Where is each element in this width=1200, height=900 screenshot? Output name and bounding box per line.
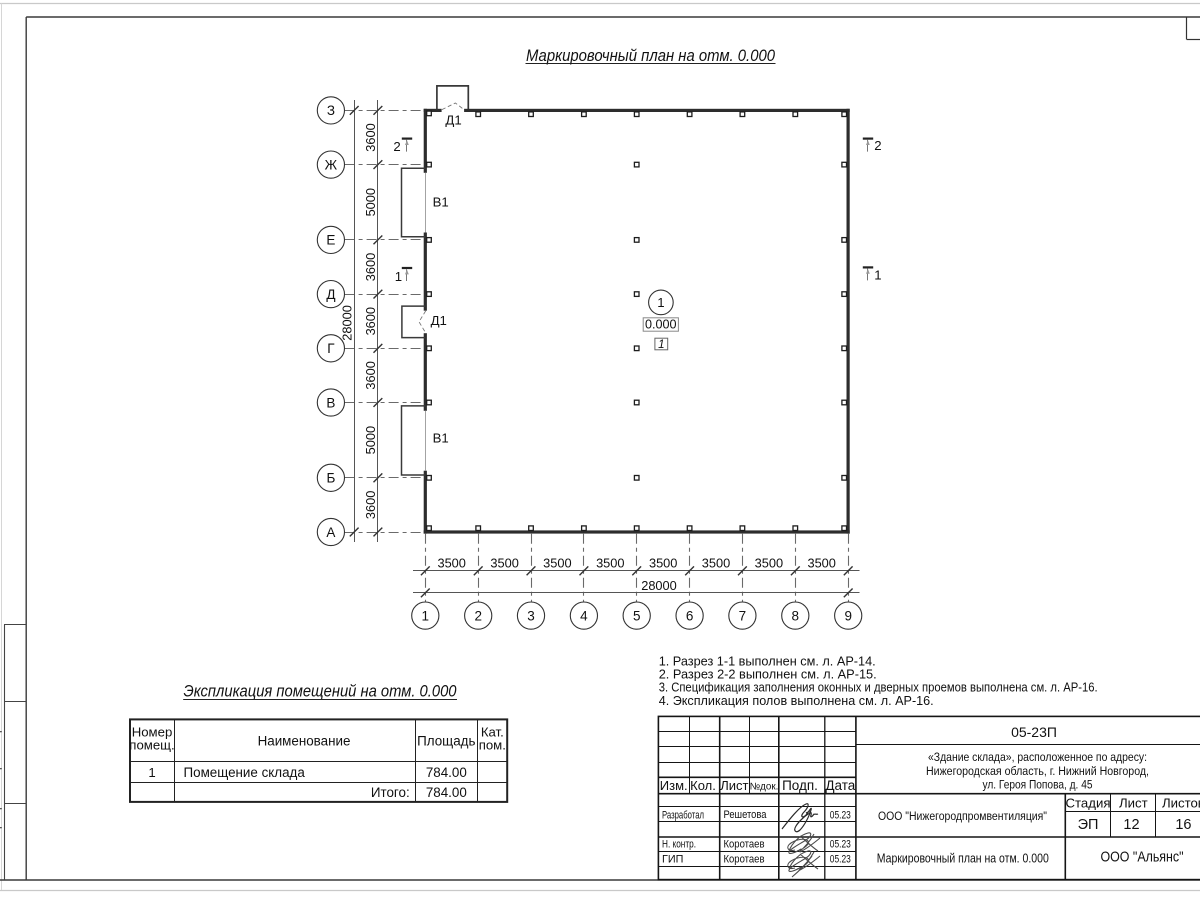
- svg-text:«Здание склада», расположенное: «Здание склада», расположенное по адресу…: [928, 750, 1147, 764]
- svg-text:05-23П: 05-23П: [1011, 724, 1057, 740]
- svg-text:А: А: [326, 525, 335, 540]
- svg-text:1: 1: [874, 267, 881, 282]
- svg-text:В1: В1: [433, 430, 449, 445]
- svg-text:2: 2: [874, 138, 881, 153]
- svg-text:Площадь: Площадь: [417, 733, 475, 748]
- svg-text:784.00: 784.00: [426, 785, 467, 800]
- svg-text:Н. контр.: Н. контр.: [662, 839, 696, 851]
- svg-text:Д1: Д1: [445, 113, 461, 128]
- svg-text:Подп.: Подп.: [782, 778, 818, 793]
- svg-text:3600: 3600: [363, 123, 378, 151]
- svg-text:Итого:: Итого:: [371, 785, 410, 800]
- svg-text:1: 1: [395, 269, 402, 284]
- svg-text:3600: 3600: [363, 361, 378, 389]
- svg-text:8: 8: [792, 608, 800, 623]
- svg-text:Решетова: Решетова: [724, 809, 768, 821]
- svg-text:пом.: пом.: [479, 738, 506, 753]
- svg-text:Лист: Лист: [720, 778, 748, 793]
- svg-text:Дата: Дата: [825, 778, 855, 793]
- svg-text:3600: 3600: [363, 253, 378, 281]
- svg-text:2: 2: [474, 608, 482, 623]
- svg-text:1: 1: [422, 608, 430, 623]
- svg-text:В: В: [326, 395, 335, 410]
- svg-text:Коротаев: Коротаев: [724, 838, 765, 850]
- svg-text:3500: 3500: [755, 556, 783, 571]
- svg-text:ООО "Нижегородпромвентиляция": ООО "Нижегородпромвентиляция": [878, 809, 1047, 823]
- svg-text:Коротаев: Коротаев: [724, 853, 765, 865]
- svg-text:3500: 3500: [649, 556, 677, 571]
- svg-text:3500: 3500: [437, 556, 465, 571]
- svg-text:28000: 28000: [340, 305, 355, 341]
- svg-text:Листов: Листов: [1162, 796, 1200, 811]
- svg-text:7: 7: [739, 608, 747, 623]
- svg-text:Изм.: Изм.: [660, 778, 688, 793]
- svg-text:Экспликация помещений на отм.: Экспликация помещений на отм. 0.000: [184, 681, 457, 700]
- svg-text:9: 9: [844, 608, 852, 623]
- svg-text:0.000: 0.000: [645, 318, 677, 332]
- svg-text:3500: 3500: [596, 556, 624, 571]
- svg-text:ООО "Альянс": ООО "Альянс": [1101, 848, 1184, 865]
- svg-text:Д1: Д1: [431, 313, 447, 328]
- svg-text:1: 1: [658, 338, 664, 351]
- svg-text:3: 3: [527, 608, 535, 623]
- svg-text:помещ.: помещ.: [129, 738, 174, 753]
- svg-text:Кол.: Кол.: [690, 778, 716, 793]
- svg-text:05.23: 05.23: [830, 839, 851, 851]
- svg-text:28000: 28000: [641, 578, 677, 593]
- svg-text:1: 1: [148, 765, 155, 780]
- svg-text:1: 1: [657, 295, 664, 310]
- svg-text:№док.: №док.: [750, 781, 779, 792]
- svg-text:05.23: 05.23: [830, 809, 851, 821]
- svg-text:3600: 3600: [363, 307, 378, 335]
- svg-text:784.00: 784.00: [426, 765, 467, 780]
- svg-text:Нижегородская область, г. Нижн: Нижегородская область, г. Нижний Новгоро…: [926, 764, 1149, 778]
- svg-text:3500: 3500: [490, 556, 518, 571]
- svg-text:ЭП: ЭП: [1078, 817, 1099, 833]
- svg-text:3600: 3600: [363, 491, 378, 519]
- svg-text:Маркировочный план на отм. 0.0: Маркировочный план на отм. 0.000: [526, 47, 776, 65]
- svg-text:Ж: Ж: [325, 157, 338, 172]
- svg-text:3500: 3500: [807, 556, 835, 571]
- svg-text:3500: 3500: [702, 556, 730, 571]
- svg-text:3500: 3500: [543, 556, 571, 571]
- svg-text:4: 4: [580, 608, 588, 623]
- svg-text:Наименование: Наименование: [258, 733, 351, 748]
- svg-text:6: 6: [686, 608, 694, 623]
- svg-text:Помещение склада: Помещение склада: [184, 765, 306, 780]
- svg-text:Д: Д: [326, 287, 335, 302]
- svg-text:5000: 5000: [363, 426, 378, 454]
- svg-text:ГИП: ГИП: [662, 854, 683, 866]
- svg-text:05.23: 05.23: [830, 854, 851, 866]
- svg-text:4. Экспликация полов выполнена: 4. Экспликация полов выполнена см. л. АР…: [659, 693, 934, 708]
- svg-text:Маркировочный план на отм. 0.0: Маркировочный план на отм. 0.000: [877, 850, 1049, 865]
- svg-text:2: 2: [393, 139, 400, 154]
- svg-text:Е: Е: [326, 233, 335, 248]
- svg-text:Разработал: Разработал: [662, 809, 704, 821]
- svg-text:В1: В1: [433, 195, 449, 210]
- svg-text:12: 12: [1123, 817, 1139, 833]
- svg-text:Б: Б: [326, 471, 335, 486]
- svg-text:З: З: [327, 103, 335, 118]
- svg-text:ул. Героя Попова, д. 45: ул. Героя Попова, д. 45: [983, 777, 1093, 791]
- svg-text:Г: Г: [327, 341, 335, 356]
- svg-text:16: 16: [1175, 817, 1191, 833]
- svg-text:5: 5: [633, 608, 641, 623]
- svg-text:Стадия: Стадия: [1066, 796, 1111, 811]
- svg-text:Лист: Лист: [1119, 796, 1148, 811]
- svg-text:5000: 5000: [363, 188, 378, 216]
